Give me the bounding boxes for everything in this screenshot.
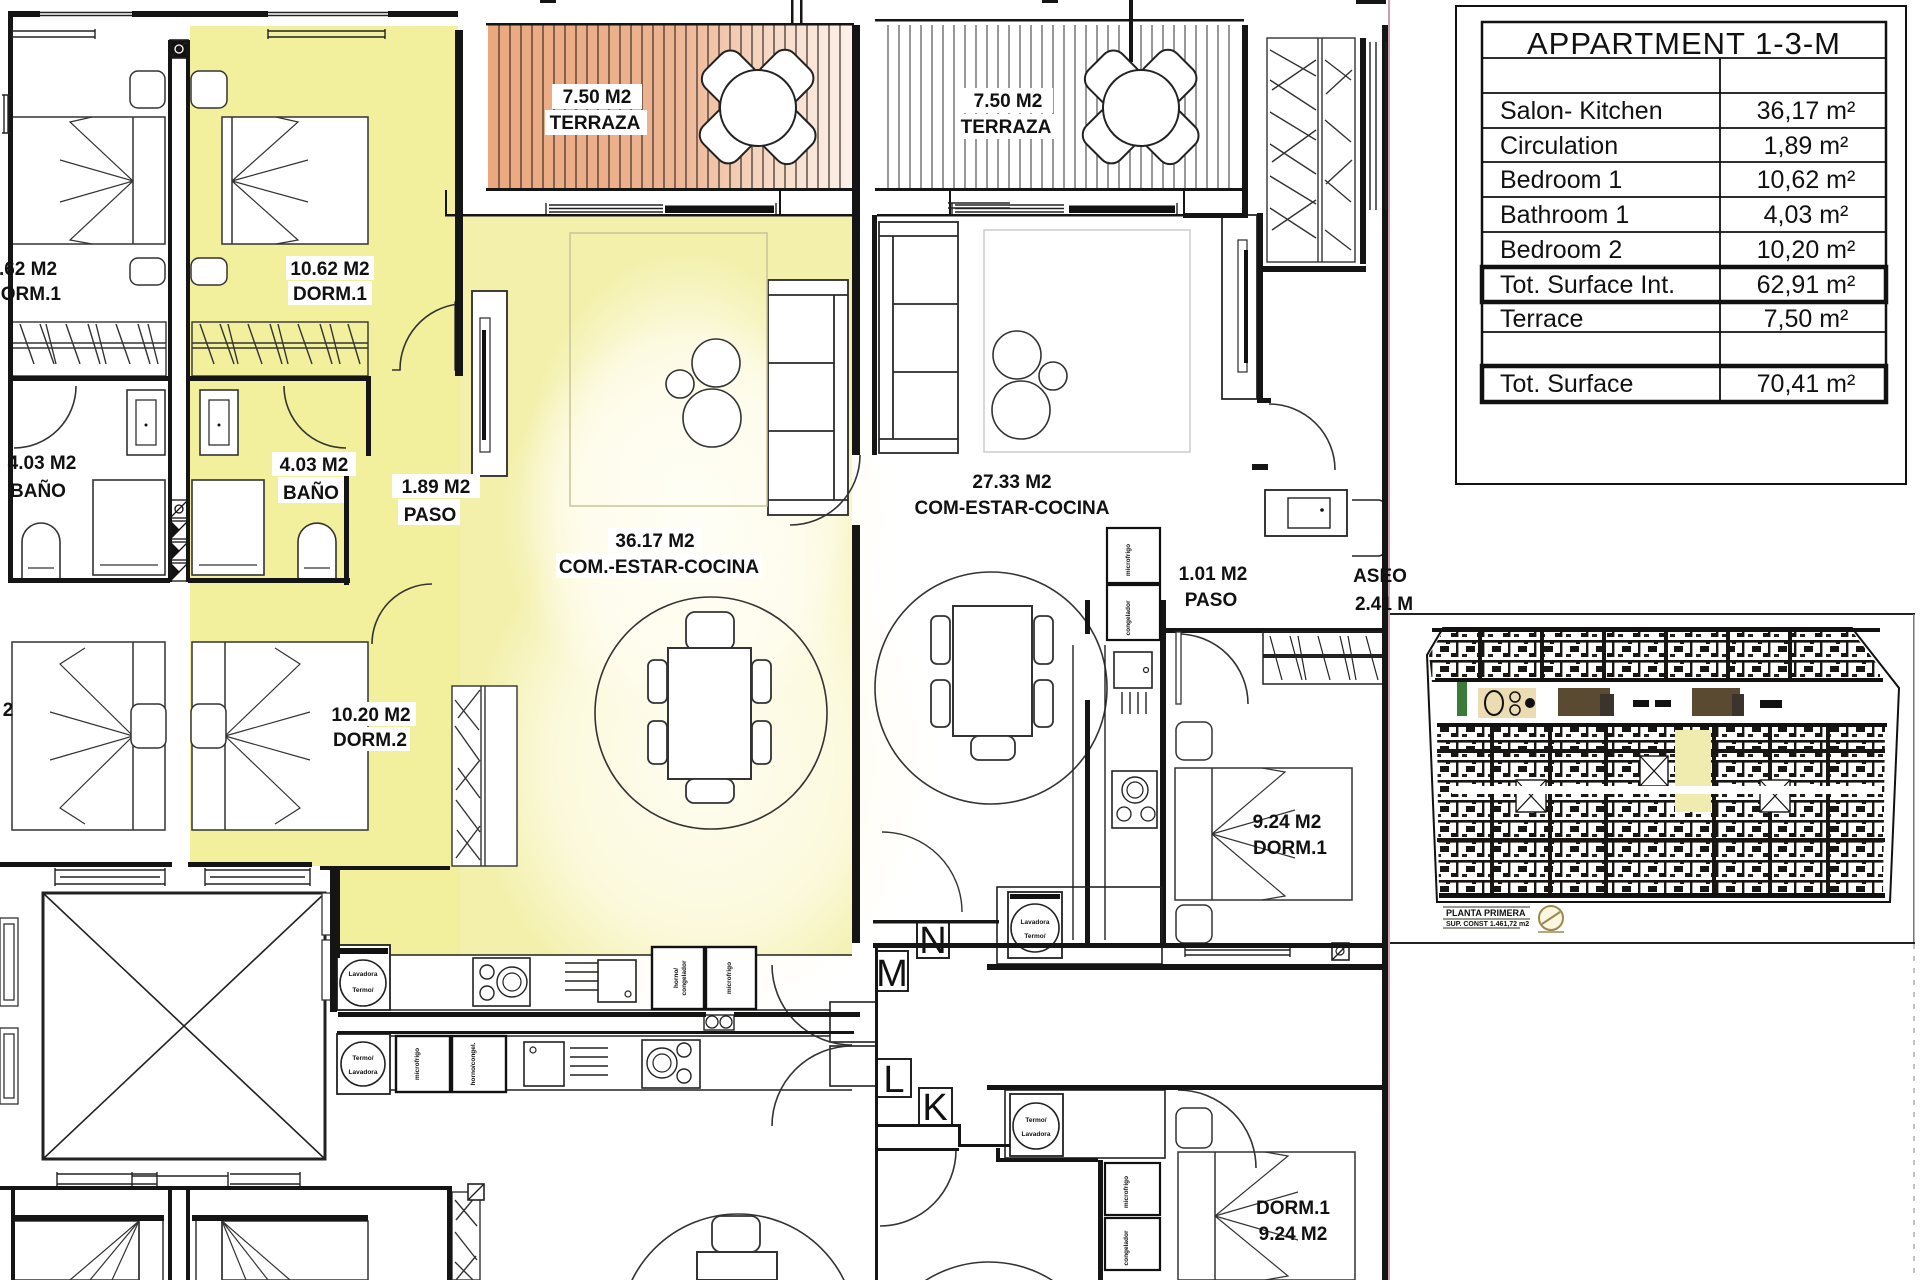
svg-text:DORM.1: DORM.1 [1253,838,1327,859]
svg-text:DORM.1: DORM.1 [1256,1198,1330,1219]
svg-text:BAÑO: BAÑO [10,480,66,502]
svg-text:microfrigo: microfrigo [1123,1176,1130,1208]
svg-text:Lavadora: Lavadora [349,971,378,978]
svg-text:10,20 m²: 10,20 m² [1757,236,1856,264]
svg-text:7,50 m²: 7,50 m² [1764,305,1849,333]
svg-text:4.03 M2: 4.03 M2 [280,455,349,476]
svg-text:4.03 M2: 4.03 M2 [8,453,77,474]
svg-text:K: K [922,1087,947,1129]
svg-text:PASO: PASO [1185,590,1237,611]
svg-text:M: M [876,953,908,995]
svg-text:70,41 m²: 70,41 m² [1757,370,1856,398]
svg-text:10,62 m²: 10,62 m² [1757,166,1856,194]
svg-text:27.33 M2: 27.33 M2 [972,472,1051,493]
svg-text:Termo/: Termo/ [1025,1117,1046,1124]
svg-text:microfrigo: microfrigo [1125,544,1132,576]
svg-text:1,89 m²: 1,89 m² [1764,132,1849,160]
svg-text:9.24 M2: 9.24 M2 [1259,1224,1328,1245]
svg-text:COM.-ESTAR-COCINA: COM.-ESTAR-COCINA [559,557,759,578]
svg-text:TERRAZA: TERRAZA [961,117,1052,138]
svg-text:9.24 M2: 9.24 M2 [1253,812,1322,833]
svg-text:Termo/: Termo/ [352,1055,373,1062]
svg-text:Tot. Surface Int.: Tot. Surface Int. [1500,271,1675,299]
svg-text:Termo/: Termo/ [352,987,373,994]
svg-text:2: 2 [3,700,14,721]
svg-text:microfrigo: microfrigo [414,1048,421,1080]
svg-text:horno/congel.: horno/congel. [470,1042,477,1085]
svg-text:7.50 M2: 7.50 M2 [974,91,1043,112]
svg-text:Lavadora: Lavadora [1021,919,1050,926]
svg-text:Lavadora: Lavadora [349,1069,378,1076]
svg-text:congelador: congelador [1125,600,1132,636]
svg-text:Terrace: Terrace [1500,305,1583,333]
svg-text:Circulation: Circulation [1500,132,1618,160]
svg-text:10.62 M2: 10.62 M2 [290,259,369,280]
svg-text:DORM.1: DORM.1 [293,284,367,305]
svg-text:Tot. Surface: Tot. Surface [1500,370,1633,398]
svg-text:congelador: congelador [681,960,688,996]
svg-text:10.20 M2: 10.20 M2 [331,705,410,726]
svg-text:Bathroom 1: Bathroom 1 [1500,201,1629,229]
svg-text:62,91 m²: 62,91 m² [1757,271,1856,299]
svg-text:1.01 M2: 1.01 M2 [1179,564,1248,585]
svg-text:Bedroom 1: Bedroom 1 [1500,166,1622,194]
svg-text:36.17 M2: 36.17 M2 [615,531,694,552]
svg-text:TERRAZA: TERRAZA [550,113,641,134]
svg-text:Termo/: Termo/ [1024,933,1045,940]
svg-text:4,03 m²: 4,03 m² [1764,201,1849,229]
svg-text:microfrigo: microfrigo [726,962,733,994]
svg-text:SUP. CONST 1.461,72 m2: SUP. CONST 1.461,72 m2 [1446,921,1529,928]
svg-text:DORM.1: DORM.1 [0,284,61,305]
svg-text:Lavadora: Lavadora [1022,1131,1051,1138]
svg-text:L: L [883,1059,904,1101]
svg-text:ASEO: ASEO [1353,566,1407,587]
svg-text:N: N [919,920,946,962]
svg-text:APPARTMENT 1-3-M: APPARTMENT 1-3-M [1527,26,1841,61]
svg-text:Bedroom 2: Bedroom 2 [1500,236,1622,264]
svg-text:.62 M2: .62 M2 [0,259,57,280]
svg-text:7.50 M2: 7.50 M2 [563,87,632,108]
svg-text:horno/: horno/ [673,968,680,988]
svg-text:COM-ESTAR-COCINA: COM-ESTAR-COCINA [915,498,1110,519]
svg-text:DORM.2: DORM.2 [333,730,407,751]
svg-text:36,17 m²: 36,17 m² [1757,97,1856,125]
svg-text:congelador: congelador [1123,1230,1130,1266]
svg-text:PASO: PASO [404,505,456,526]
svg-text:1.89 M2: 1.89 M2 [402,477,471,498]
svg-text:PLANTA PRIMERA: PLANTA PRIMERA [1446,908,1526,918]
svg-text:2.41 M: 2.41 M [1355,594,1413,615]
svg-text:BAÑO: BAÑO [283,482,339,504]
svg-text:Salon- Kitchen: Salon- Kitchen [1500,97,1663,125]
